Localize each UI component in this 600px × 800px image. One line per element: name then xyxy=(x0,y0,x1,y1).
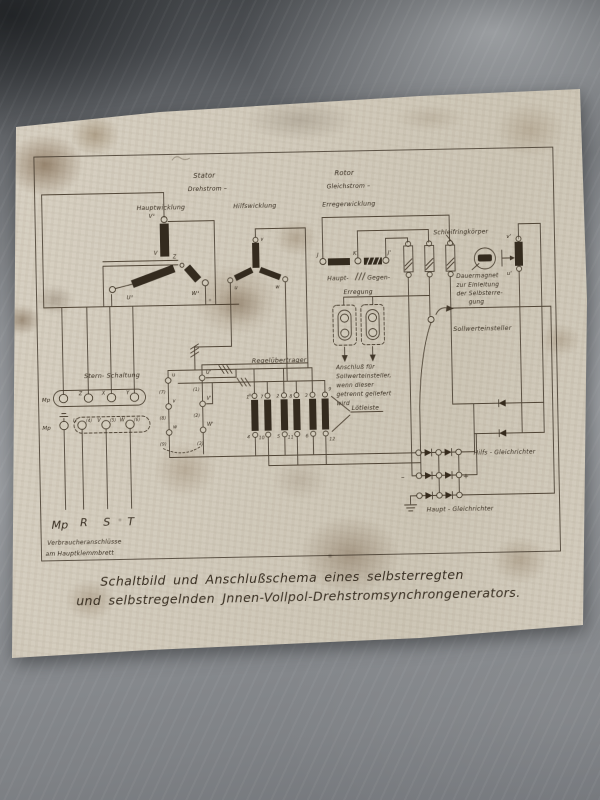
connector-block-1 xyxy=(333,305,357,345)
label-s-main: S xyxy=(103,516,110,529)
label-verbraucher-1: Verbraucheranschlüsse xyxy=(47,538,121,546)
haupt-coil-w xyxy=(187,267,198,280)
bridge-diodes xyxy=(499,400,507,437)
consumer-terminals: Mp R S T Verbraucheranschlüsse am Hauptk… xyxy=(45,515,136,558)
label-loetleiste: Lötleiste xyxy=(352,404,380,412)
label-w-aux: w xyxy=(275,284,280,290)
label-dauermagnet-3: der Selbsterre- xyxy=(457,291,503,298)
label-v1-col: V' xyxy=(206,396,211,402)
label-v-aux: v xyxy=(260,237,264,243)
ground-symbol xyxy=(405,505,417,511)
terminal-num: 12 xyxy=(329,436,335,442)
label-v-board: V xyxy=(97,418,101,424)
label-verbraucher-2: am Hauptklemmbrett xyxy=(45,550,114,558)
label-u-aux: u xyxy=(234,285,237,291)
terminal-num: 8 xyxy=(289,394,292,400)
dauermagnet: Dauermagnet zur Einleitung der Selbsterr… xyxy=(455,248,503,306)
terminal-w1 xyxy=(202,280,208,286)
label-anschluss-4: getrennt geliefert xyxy=(336,391,391,398)
terminal-num: 3 xyxy=(305,393,308,399)
terminal-u1 xyxy=(109,287,115,293)
terminal-j-prime xyxy=(383,257,389,263)
label-stator: Stator xyxy=(193,172,216,180)
label-r-main: R xyxy=(80,516,88,529)
label-mp-top: Mp xyxy=(42,398,51,404)
photo-of-schematic: Stator Drehstrom – Rotor Gleichstrom – H… xyxy=(0,0,600,800)
terminal-num: 4 xyxy=(247,434,250,440)
mp-mark xyxy=(60,413,68,421)
label-mp-bottom: Mp xyxy=(42,426,51,432)
label-v1: V¹ xyxy=(149,213,156,220)
label-dauermagnet-4: gung xyxy=(469,299,485,305)
num-5: (5) xyxy=(110,418,117,423)
label-dauermagnet-1: Dauermagnet xyxy=(456,273,499,280)
label-z-board: Z xyxy=(78,391,83,397)
terminal-j xyxy=(320,258,326,264)
haupt-erregung-coil xyxy=(328,258,350,265)
label-x-board: X xyxy=(101,391,106,397)
hatch-glyph xyxy=(355,273,365,280)
label-haupt-gleichrichter: Haupt - Gleichrichter xyxy=(427,505,494,513)
label-gegen-erregung: Gegen- xyxy=(367,274,390,281)
terminal-num: 6 xyxy=(306,433,309,439)
caption-line-2: und selbstregelnden Jnnen-Vollpol-Drehst… xyxy=(76,585,521,609)
label-mp-main: Mp xyxy=(51,518,68,531)
label-anschluss-3: wenn dieser xyxy=(336,383,374,390)
label-u1: U¹ xyxy=(127,294,134,301)
label-w-col: w xyxy=(173,424,178,430)
num-7: (7) xyxy=(159,390,166,396)
pencil-smudge xyxy=(172,156,190,160)
transformer-coils xyxy=(251,398,329,430)
minus-sign: – xyxy=(401,473,405,481)
magnet-arrow xyxy=(510,255,515,260)
label-dauermagnet-2: zur Einleitung xyxy=(455,282,499,289)
loetleiste: Lötleiste xyxy=(351,404,383,412)
label-anschluss-1: Anschluß für xyxy=(335,365,375,372)
label-y-board: Y xyxy=(126,390,130,396)
terminal-num: 2 xyxy=(276,393,279,399)
star-junction xyxy=(180,263,184,267)
haupt-coil-v xyxy=(160,223,170,256)
caption-line-1: Schaltbild und Anschlußschema eines selb… xyxy=(100,567,464,589)
label-j: J xyxy=(316,253,319,259)
label-stern-schaltung: Stern- Schaltung xyxy=(84,371,140,380)
label-hauptwicklung: Hauptwicklung xyxy=(136,203,185,212)
arrow-down-2 xyxy=(370,355,376,362)
label-w1: W¹ xyxy=(191,290,199,297)
label-rotor: Rotor xyxy=(334,169,355,177)
label-u1-col: U' xyxy=(206,370,212,376)
sollwert-terminal xyxy=(428,316,434,322)
pilot-coil-body xyxy=(515,242,523,266)
hilfs-winding-star: v u w xyxy=(227,236,288,291)
terminal-num: 7 xyxy=(260,394,263,400)
terminal-v-aux xyxy=(253,237,258,242)
label-regeluebertrager: Regelübertrager xyxy=(252,356,307,365)
label-v-col: v xyxy=(173,398,177,404)
terminal-v1 xyxy=(161,217,167,223)
terminal-num: 5 xyxy=(277,434,280,440)
pilot-coil: v' u' xyxy=(501,234,523,277)
haupt-coil-u xyxy=(132,268,174,284)
label-erregerwicklung: Erregerwicklung xyxy=(322,201,375,209)
label-hilfs-gleichrichter: Hilfs - Gleichrichter xyxy=(474,448,536,456)
cable-tick-marks xyxy=(190,343,250,387)
label-j-prime: J' xyxy=(387,250,392,256)
schematic-drawing: Stator Drehstrom – Rotor Gleichstrom – H… xyxy=(0,0,600,800)
terminal-num: 10 xyxy=(259,435,265,441)
label-z: Z xyxy=(172,254,177,260)
diagram-frame xyxy=(34,147,561,561)
haupt-winding-star: V¹ V Z U¹ W¹ xyxy=(108,212,209,302)
terminal-num: 1 xyxy=(246,394,249,400)
label-v-prime: v' xyxy=(506,234,511,240)
magnet-bar xyxy=(478,254,492,261)
num-6: (6) xyxy=(134,417,141,422)
anschluss-blocks: Anschluß für Sollwerteinsteller, wenn di… xyxy=(333,304,392,407)
exciter-winding: J K J' Haupt- Gegen- Erregung xyxy=(316,250,392,296)
label-v: V xyxy=(154,251,159,257)
num-2: (2) xyxy=(193,413,200,419)
sollwerteinsteller: Sollwerteinsteller xyxy=(428,304,512,334)
label-erregung: Erregung xyxy=(343,289,372,297)
label-schleifringkoerper: Schleifringkörper xyxy=(433,228,488,236)
mp-terminal xyxy=(60,421,69,430)
terminal-num: 9 xyxy=(328,386,331,392)
label-u-prime: u' xyxy=(507,271,513,277)
label-anschluss-5: wird xyxy=(337,401,350,407)
wiper-arrow-head xyxy=(446,305,454,312)
hilfs-coil-u xyxy=(235,270,252,278)
num-9: (9) xyxy=(160,442,167,448)
magnet-symbol xyxy=(502,250,510,266)
arrow-down-1 xyxy=(342,355,348,362)
label-u-col: u xyxy=(172,372,175,378)
label-u-board: U xyxy=(73,418,77,424)
label-anschluss-2: Sollwerteinsteller, xyxy=(336,373,392,380)
label-sollwerteinsteller: Sollwerteinsteller xyxy=(453,324,512,333)
plus-sign: + xyxy=(463,472,469,480)
num-1: (1) xyxy=(193,387,200,393)
label-w1-col: W' xyxy=(207,422,214,428)
terminal-w-aux xyxy=(283,277,288,282)
terminal-num: 11 xyxy=(288,435,294,441)
label-k: K xyxy=(353,251,357,257)
label-w-board: W xyxy=(120,417,126,423)
terminal-k xyxy=(355,258,361,264)
terminal-u-aux xyxy=(228,278,233,283)
label-haupt-erregung: Haupt- xyxy=(327,275,349,282)
num-3: (3) xyxy=(197,441,204,447)
label-gleichstrom: Gleichstrom – xyxy=(327,183,371,191)
aux-terminal-columns: u (7) v (8) w (9) U' (1) V' (2) W' (3) xyxy=(159,370,215,454)
num-4: (4) xyxy=(86,418,93,423)
caption: Schaltbild und Anschlußschema eines selb… xyxy=(76,566,521,609)
label-hilfswicklung: Hilfswicklung xyxy=(233,202,276,210)
num-8: (8) xyxy=(159,416,166,422)
hilfs-coil-w xyxy=(260,269,280,277)
hilfs-coil-v xyxy=(252,243,259,268)
connector-block-2 xyxy=(361,304,385,344)
label-t-main: T xyxy=(127,515,135,528)
label-drehstrom: Drehstrom – xyxy=(188,185,227,193)
